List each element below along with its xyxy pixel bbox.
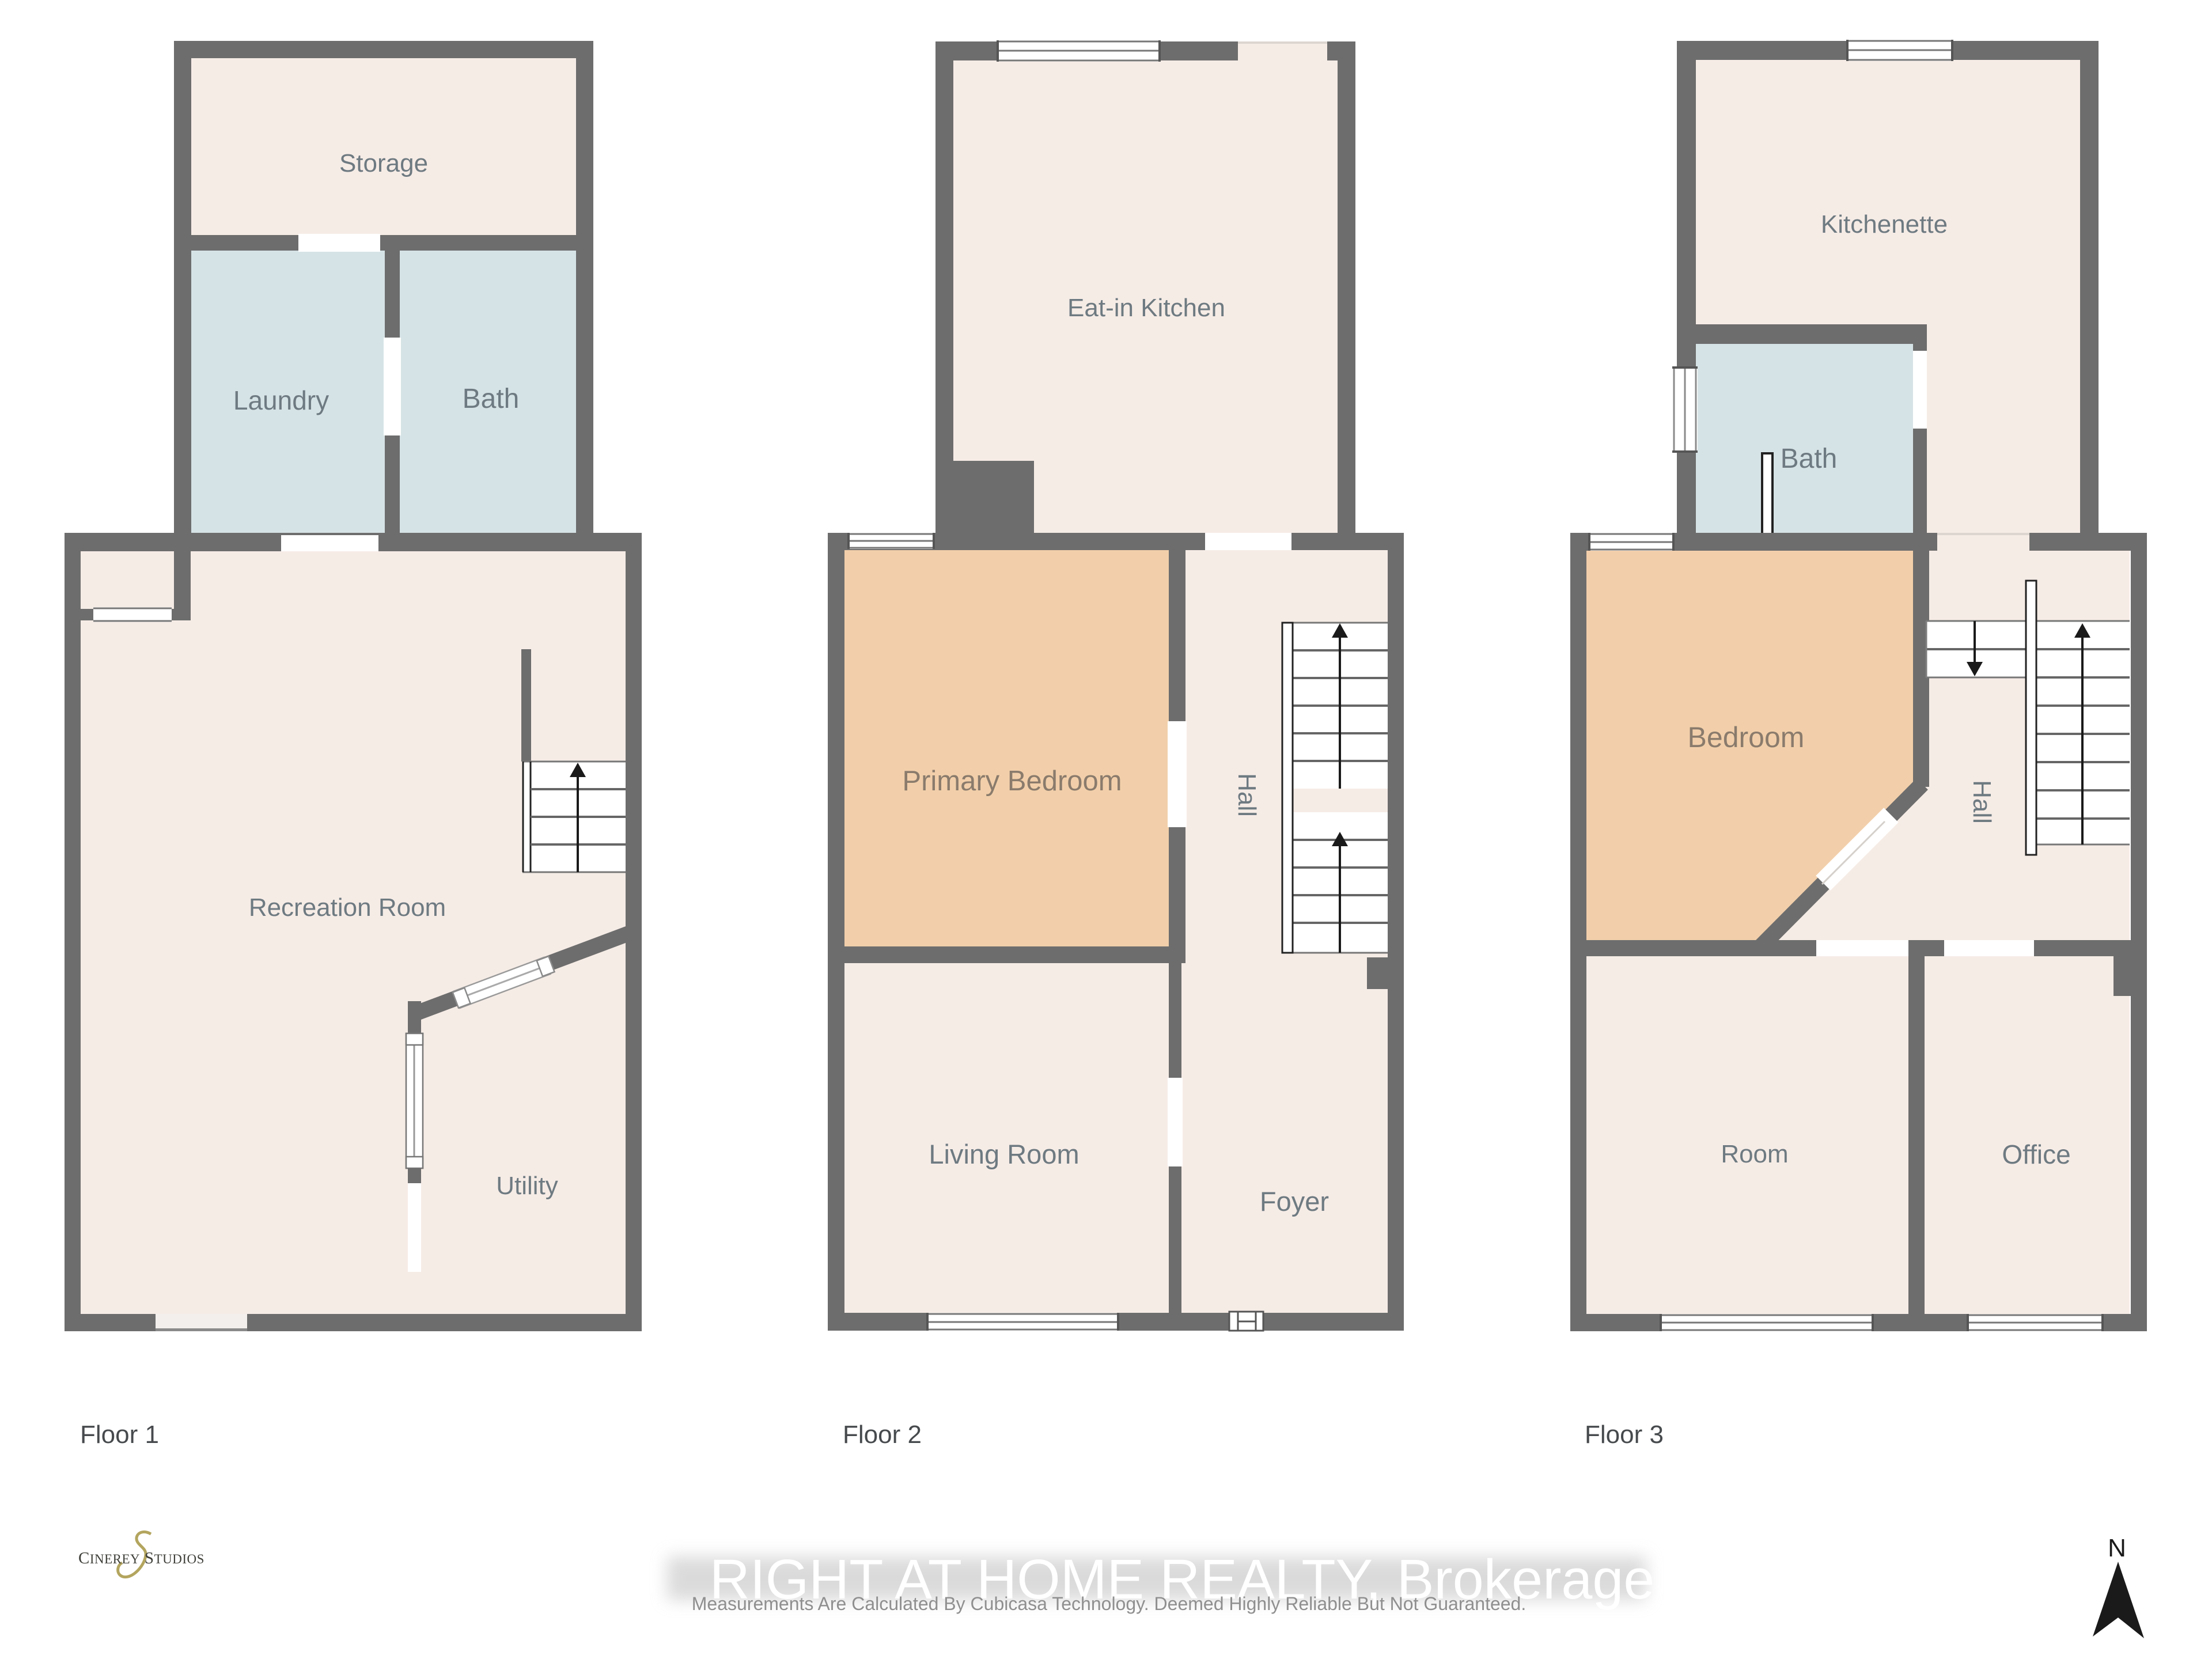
svg-text:N: N bbox=[2108, 1534, 2126, 1562]
svg-text:Foyer: Foyer bbox=[1260, 1186, 1329, 1217]
svg-text:Floor 3: Floor 3 bbox=[1585, 1421, 1664, 1449]
svg-text:Office: Office bbox=[2002, 1139, 2070, 1169]
svg-text:Living Room: Living Room bbox=[929, 1139, 1079, 1169]
svg-text:Kitchenette: Kitchenette bbox=[1821, 210, 1948, 238]
svg-text:Bath: Bath bbox=[463, 384, 520, 414]
svg-text:Hall: Hall bbox=[1968, 780, 1996, 824]
svg-text:Hall: Hall bbox=[1233, 773, 1261, 817]
svg-text:Primary Bedroom: Primary Bedroom bbox=[902, 766, 1122, 797]
svg-text:Room: Room bbox=[1721, 1140, 1788, 1168]
svg-text:CINEREY STUDIOS: CINEREY STUDIOS bbox=[78, 1549, 204, 1567]
svg-text:Floor 1: Floor 1 bbox=[80, 1421, 159, 1449]
svg-text:Bedroom: Bedroom bbox=[1688, 721, 1805, 753]
svg-text:Floor 2: Floor 2 bbox=[843, 1421, 922, 1449]
svg-text:Recreation Room: Recreation Room bbox=[249, 893, 446, 922]
svg-text:Storage: Storage bbox=[339, 149, 428, 177]
svg-text:Measurements Are Calculated By: Measurements Are Calculated By Cubicasa … bbox=[692, 1593, 1526, 1614]
svg-text:Utility: Utility bbox=[496, 1172, 558, 1200]
svg-text:Bath: Bath bbox=[1781, 444, 1838, 474]
svg-text:Eat-in Kitchen: Eat-in Kitchen bbox=[1067, 294, 1225, 322]
svg-text:Laundry: Laundry bbox=[233, 385, 329, 415]
